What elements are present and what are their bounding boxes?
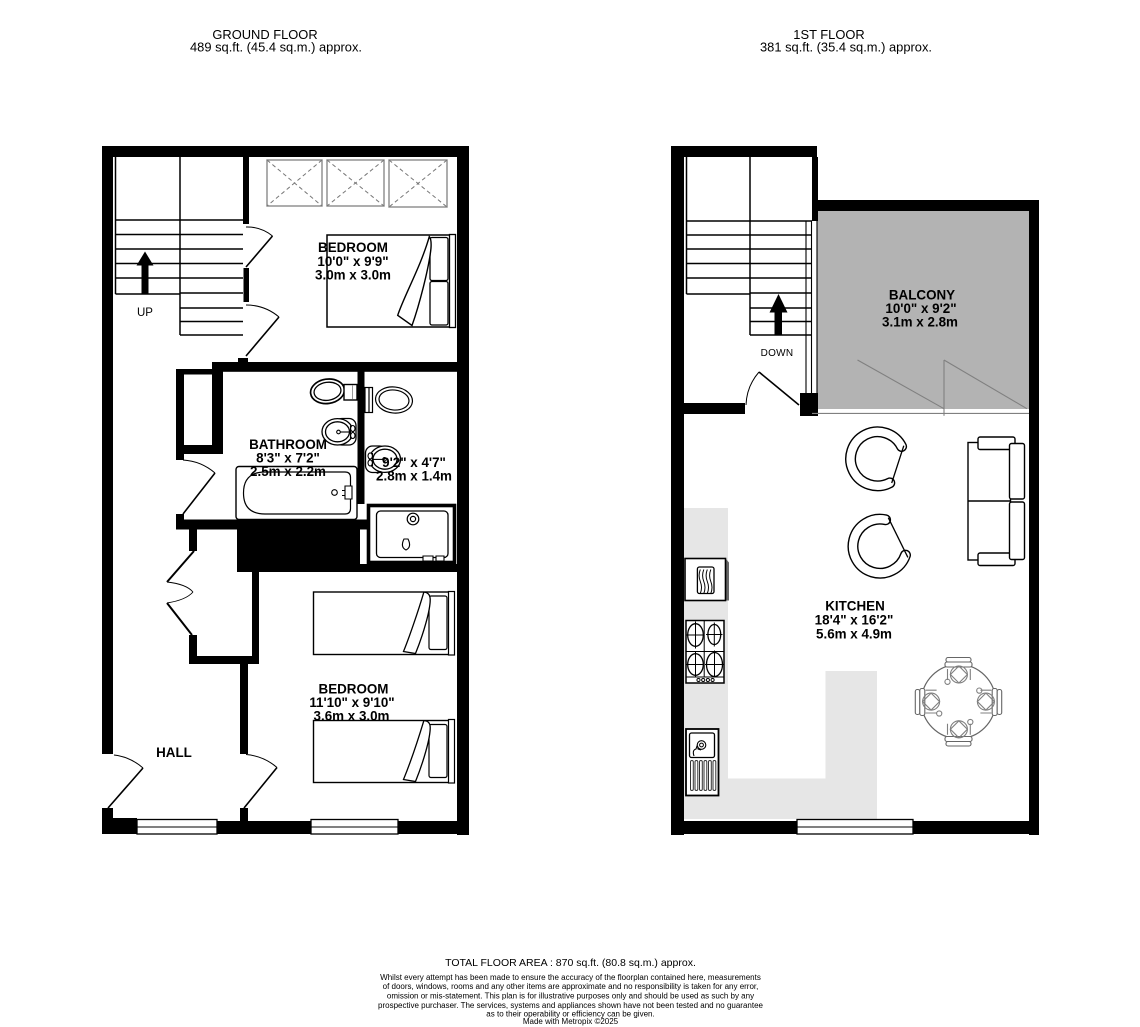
- svg-text:489 sq.ft. (45.4 sq.m.) approx: 489 sq.ft. (45.4 sq.m.) approx.: [190, 40, 362, 55]
- svg-text:HALL: HALL: [156, 745, 192, 760]
- svg-text:2.8m x 1.4m: 2.8m x 1.4m: [376, 469, 452, 484]
- svg-text:UP: UP: [137, 307, 153, 319]
- svg-text:3.0m x 3.0m: 3.0m x 3.0m: [315, 268, 391, 283]
- svg-text:omission or mis-statement. Thi: omission or mis-statement. This plan is …: [387, 992, 754, 1001]
- svg-text:KITCHEN: KITCHEN: [825, 599, 885, 614]
- svg-text:BEDROOM: BEDROOM: [318, 240, 388, 255]
- svg-text:5.6m x 4.9m: 5.6m x 4.9m: [816, 627, 892, 642]
- svg-text:Made with Metropix ©2025: Made with Metropix ©2025: [523, 1017, 619, 1026]
- svg-text:381 sq.ft. (35.4 sq.m.) approx: 381 sq.ft. (35.4 sq.m.) approx.: [760, 40, 932, 55]
- svg-text:3.1m x 2.8m: 3.1m x 2.8m: [882, 315, 958, 330]
- svg-text:3.6m x 3.0m: 3.6m x 3.0m: [314, 709, 390, 724]
- svg-text:DOWN: DOWN: [761, 348, 794, 359]
- svg-text:Whilst every attempt has been: Whilst every attempt has been made to en…: [380, 973, 761, 982]
- svg-text:TOTAL FLOOR AREA : 870 sq.ft.: TOTAL FLOOR AREA : 870 sq.ft. (80.8 sq.m…: [445, 957, 696, 969]
- svg-text:18'4" x 16'2": 18'4" x 16'2": [815, 613, 894, 628]
- svg-text:2.5m x 2.2m: 2.5m x 2.2m: [250, 464, 326, 479]
- svg-text:of doors, windows, rooms and a: of doors, windows, rooms and any other i…: [383, 982, 759, 991]
